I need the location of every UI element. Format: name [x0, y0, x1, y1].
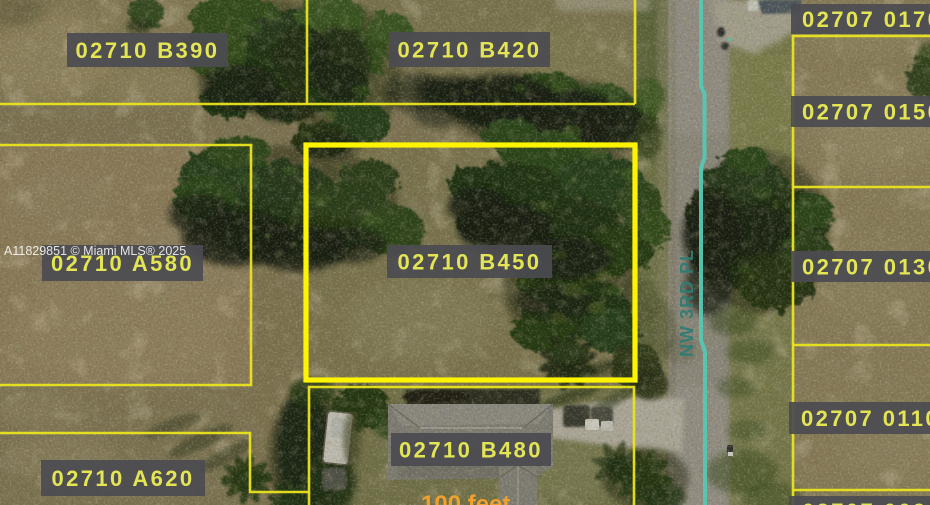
svg-text:02710 B450: 02710 B450: [398, 249, 542, 274]
svg-text:02707 0150: 02707 0150: [802, 99, 930, 124]
svg-text:02710 A620: 02710 A620: [51, 466, 194, 491]
svg-text:02710 B480: 02710 B480: [399, 437, 543, 462]
svg-text:A11829851 © Miami MLS® 2025: A11829851 © Miami MLS® 2025: [4, 244, 186, 258]
svg-text:02707 0110: 02707 0110: [801, 406, 930, 431]
svg-text:100 feet: 100 feet: [421, 491, 510, 505]
svg-text:NW 3RD PL: NW 3RD PL: [677, 249, 697, 357]
svg-text:02710 B390: 02710 B390: [76, 38, 220, 63]
svg-text:02707 0130: 02707 0130: [802, 254, 930, 279]
svg-text:02707 0090: 02707 0090: [802, 499, 930, 505]
svg-text:02710 B420: 02710 B420: [398, 37, 542, 62]
svg-text:02707 0170: 02707 0170: [802, 7, 930, 32]
